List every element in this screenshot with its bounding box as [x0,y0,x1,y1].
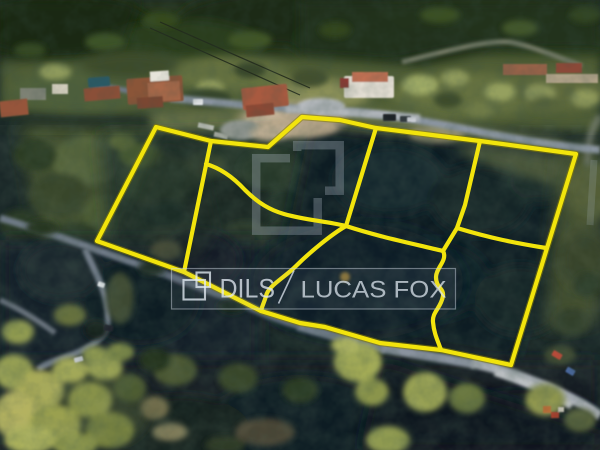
svg-text:LUCAS FOX: LUCAS FOX [301,277,447,304]
svg-text:DILS: DILS [220,274,276,304]
